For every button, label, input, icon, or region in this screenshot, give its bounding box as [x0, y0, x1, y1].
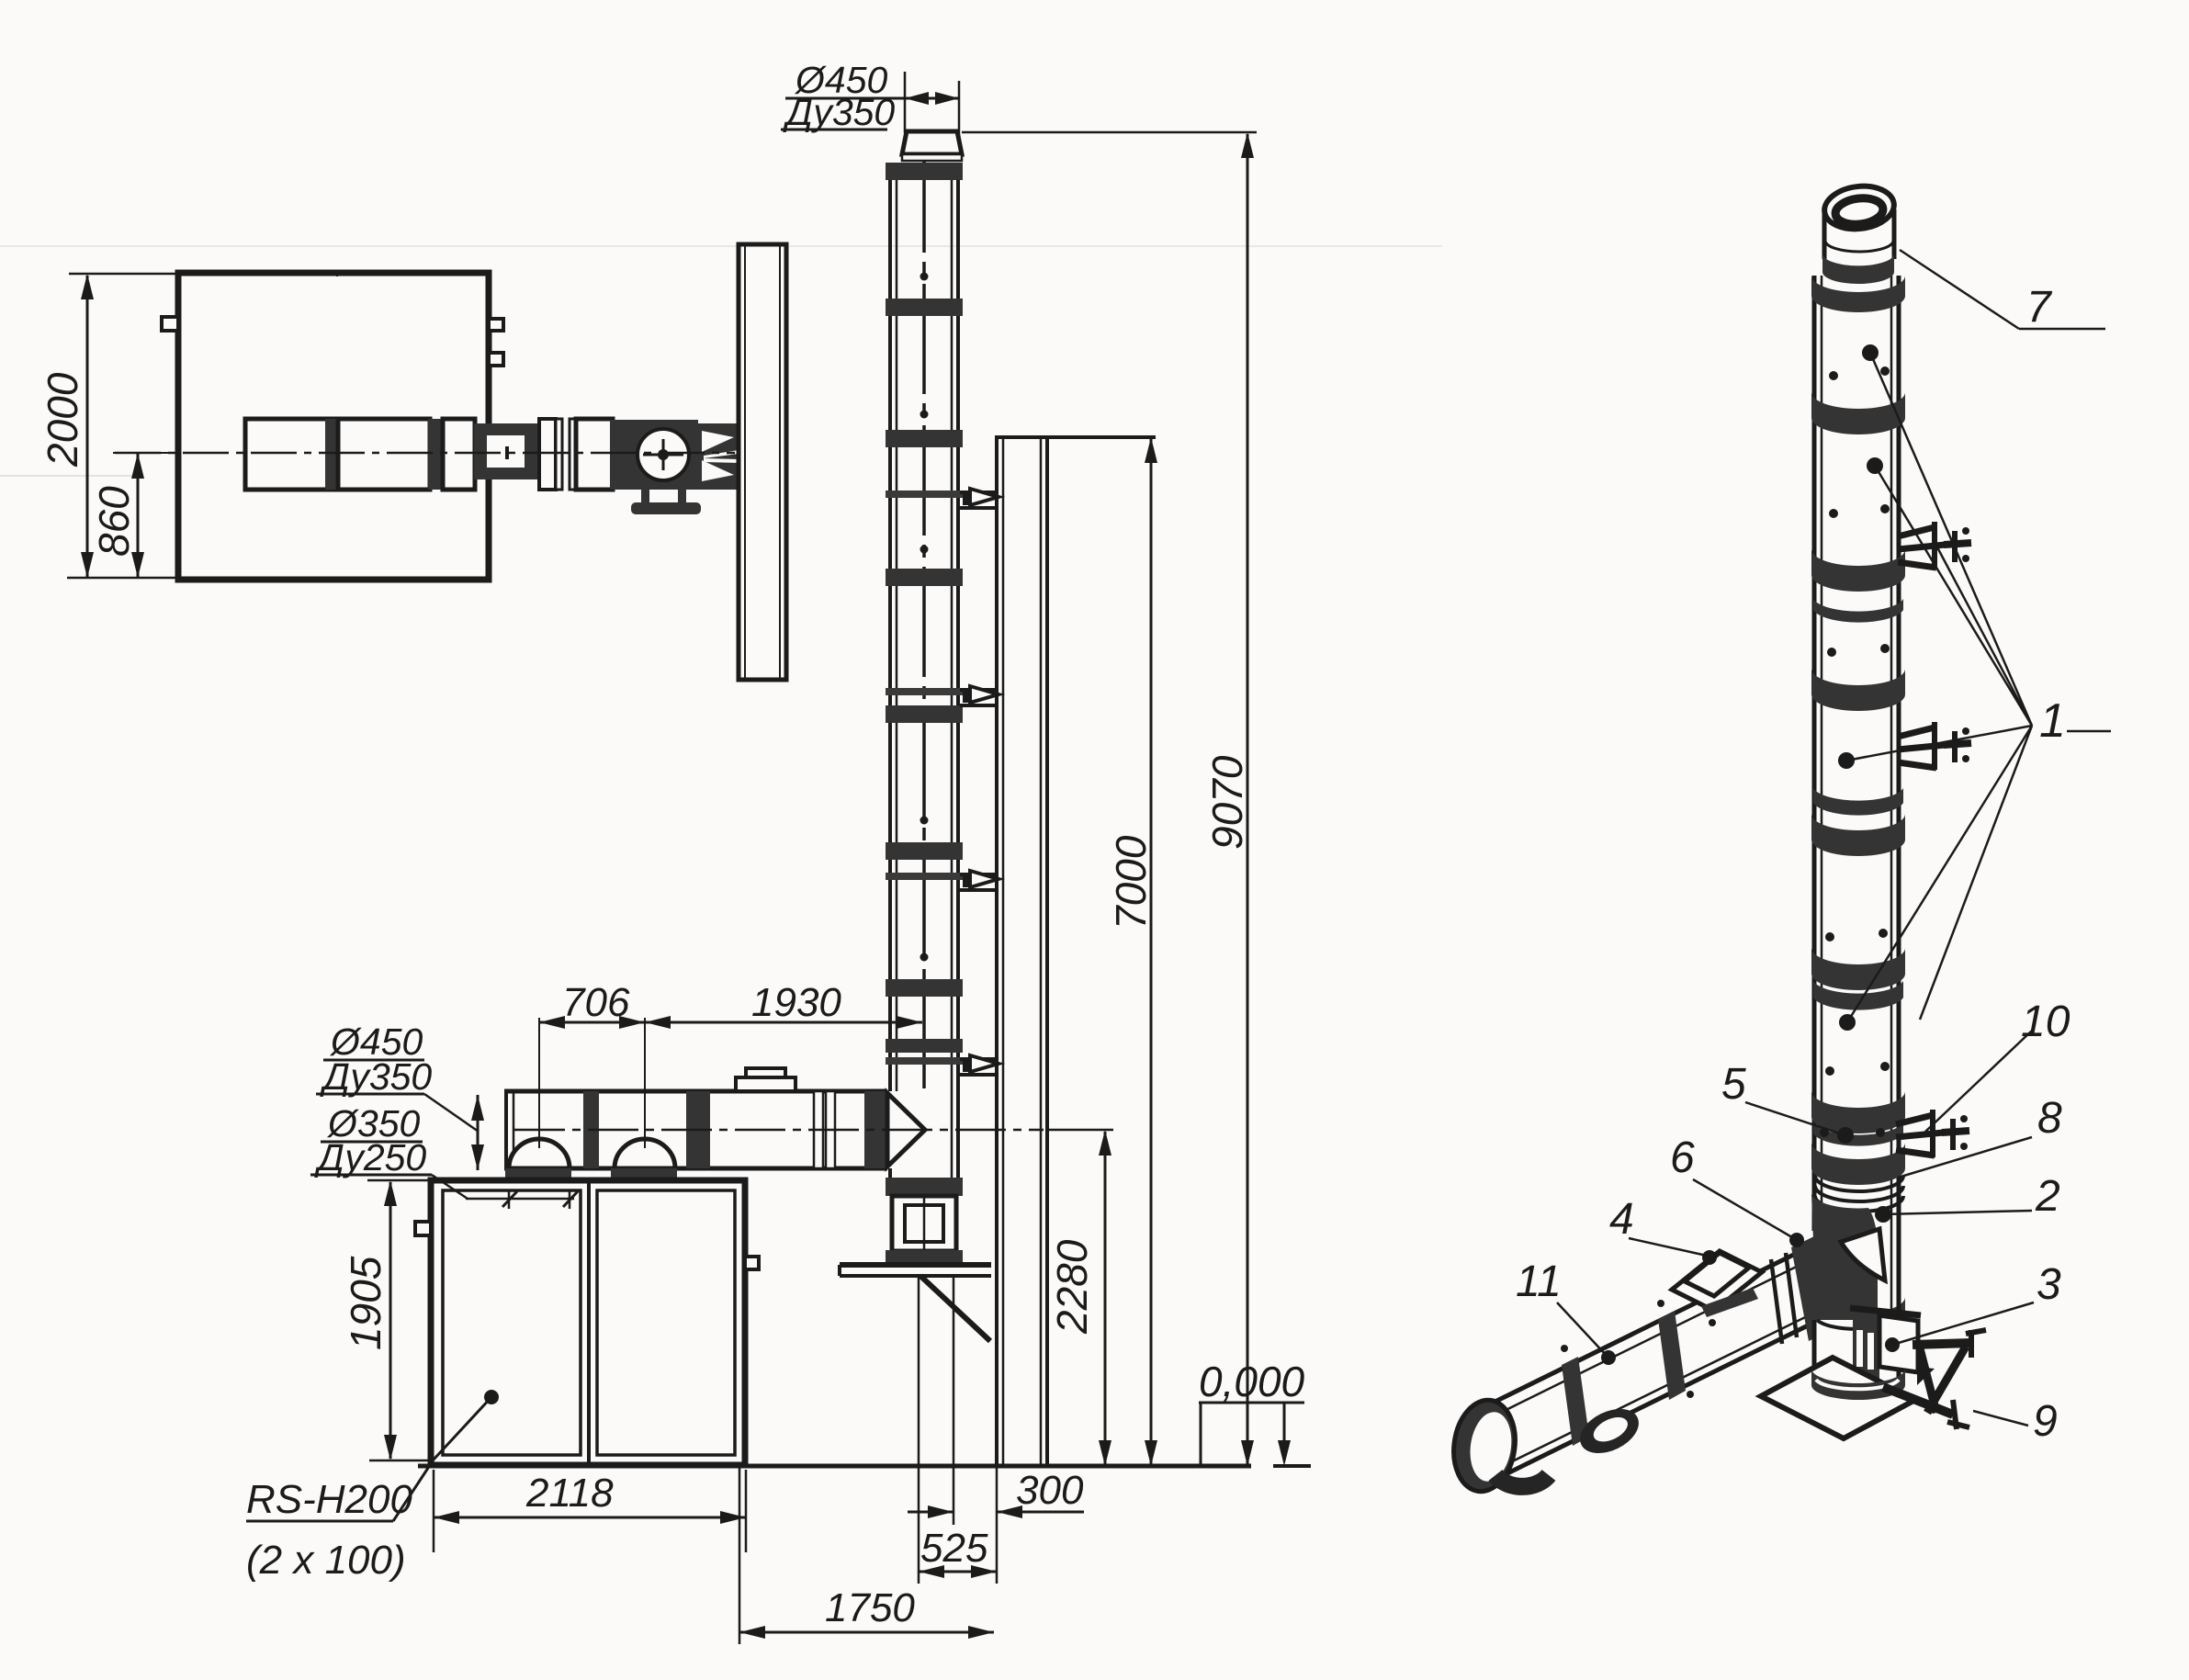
svg-text:9: 9: [2033, 1397, 2058, 1446]
svg-text:7: 7: [2026, 283, 2053, 332]
svg-text:Ду350: Ду350: [320, 1055, 432, 1098]
svg-text:1: 1: [2039, 694, 2066, 748]
svg-text:7000: 7000: [1107, 835, 1155, 930]
svg-text:0,000: 0,000: [1199, 1358, 1305, 1405]
svg-text:8: 8: [2037, 1094, 2062, 1143]
svg-text:6: 6: [1670, 1133, 1695, 1182]
svg-text:Ду350: Ду350: [783, 91, 895, 133]
svg-text:860: 860: [90, 486, 138, 557]
svg-text:3: 3: [2037, 1260, 2061, 1309]
svg-text:11: 11: [1516, 1257, 1562, 1306]
svg-text:2280: 2280: [1048, 1239, 1096, 1335]
svg-text:2: 2: [2035, 1172, 2060, 1221]
svg-text:(2 x 100): (2 x 100): [246, 1538, 406, 1583]
svg-text:10: 10: [2021, 998, 2071, 1046]
svg-text:2118: 2118: [525, 1471, 614, 1516]
svg-text:1750: 1750: [825, 1585, 915, 1630]
svg-text:525: 525: [920, 1526, 988, 1571]
svg-text:300: 300: [1016, 1468, 1084, 1513]
svg-text:Ду250: Ду250: [314, 1136, 426, 1178]
svg-text:9070: 9070: [1203, 755, 1251, 850]
svg-text:RS-H200: RS-H200: [246, 1477, 412, 1522]
svg-text:2000: 2000: [39, 372, 86, 468]
svg-text:1905: 1905: [342, 1256, 389, 1350]
svg-text:1930: 1930: [751, 980, 841, 1025]
svg-text:4: 4: [1609, 1195, 1634, 1244]
svg-text:5: 5: [1721, 1060, 1746, 1109]
